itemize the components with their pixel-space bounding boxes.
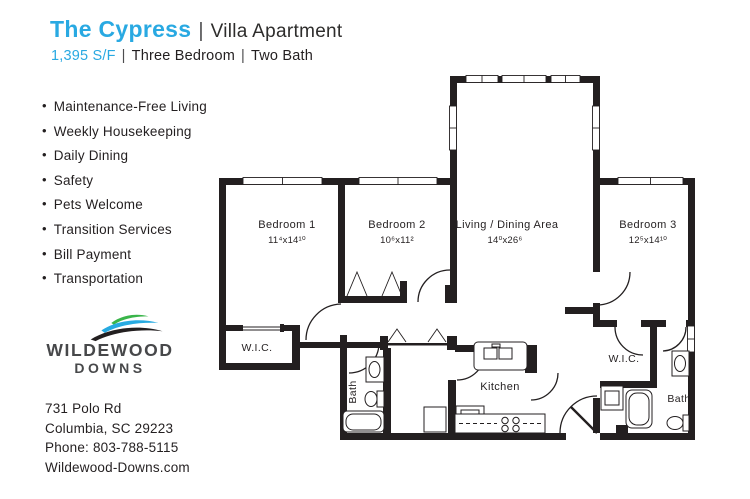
sink-icon xyxy=(366,357,384,382)
kitchen-sink-icon xyxy=(474,342,527,370)
window-icon xyxy=(593,106,600,150)
bifold-door-icon xyxy=(388,329,406,342)
window-icon xyxy=(502,76,546,83)
walls xyxy=(219,76,695,440)
bath-right-label: Bath xyxy=(667,393,690,405)
bedroom3-door-icon xyxy=(597,272,630,305)
kitchen-label: Kitchen xyxy=(480,381,520,393)
bedroom1-dims: 11⁴x14¹⁰ xyxy=(268,235,306,246)
window-icon xyxy=(450,106,457,150)
bath-left-label: Bath xyxy=(347,380,359,403)
window-icon xyxy=(688,326,695,352)
kitchen-right-door-icon xyxy=(531,373,558,400)
room-labels: Bedroom 1 11⁴x14¹⁰ Bedroom 2 10⁶x11² Liv… xyxy=(242,219,691,405)
bedroom2-label: Bedroom 2 xyxy=(368,219,425,231)
window-icon xyxy=(243,178,322,185)
wic-left-label: W.I.C. xyxy=(242,342,273,354)
bedroom3-label: Bedroom 3 xyxy=(619,219,676,231)
bath-right-door-icon xyxy=(663,327,686,351)
living-dining-dims: 14⁰x26⁶ xyxy=(487,235,522,246)
flyer-page: The Cypress|Villa Apartment 1,395 S/F|Th… xyxy=(0,0,750,499)
bifold-door-icon xyxy=(428,329,446,342)
windows xyxy=(243,76,695,353)
bathtub-icon xyxy=(343,411,384,432)
bedroom1-door-icon xyxy=(306,304,341,340)
toilet-icon xyxy=(667,415,689,431)
bathtub-icon xyxy=(626,390,652,428)
bedroom2-dims: 10⁶x11² xyxy=(380,235,414,246)
wic-right-door-icon xyxy=(615,327,643,355)
stove-icon xyxy=(455,414,545,433)
bifold-door-icon xyxy=(347,272,367,296)
window-icon xyxy=(466,76,498,83)
bedroom3-dims: 12⁵x14¹⁰ xyxy=(629,235,667,246)
window-icon xyxy=(551,76,580,83)
toilet-icon xyxy=(365,391,384,407)
entry-door-icon xyxy=(560,396,597,433)
sink-icon xyxy=(672,351,689,376)
wic-right-label: W.I.C. xyxy=(609,353,640,365)
bedroom1-label: Bedroom 1 xyxy=(258,219,315,231)
closet-shelf-icon xyxy=(243,324,284,332)
bifold-door-icon xyxy=(382,272,402,296)
floor-plan: Bedroom 1 11⁴x14¹⁰ Bedroom 2 10⁶x11² Liv… xyxy=(0,0,750,499)
window-icon xyxy=(359,178,437,185)
window-icon xyxy=(618,178,683,185)
washer-icon xyxy=(424,407,446,432)
living-dining-label: Living / Dining Area xyxy=(456,219,559,231)
utility-closet-icon xyxy=(601,386,623,410)
